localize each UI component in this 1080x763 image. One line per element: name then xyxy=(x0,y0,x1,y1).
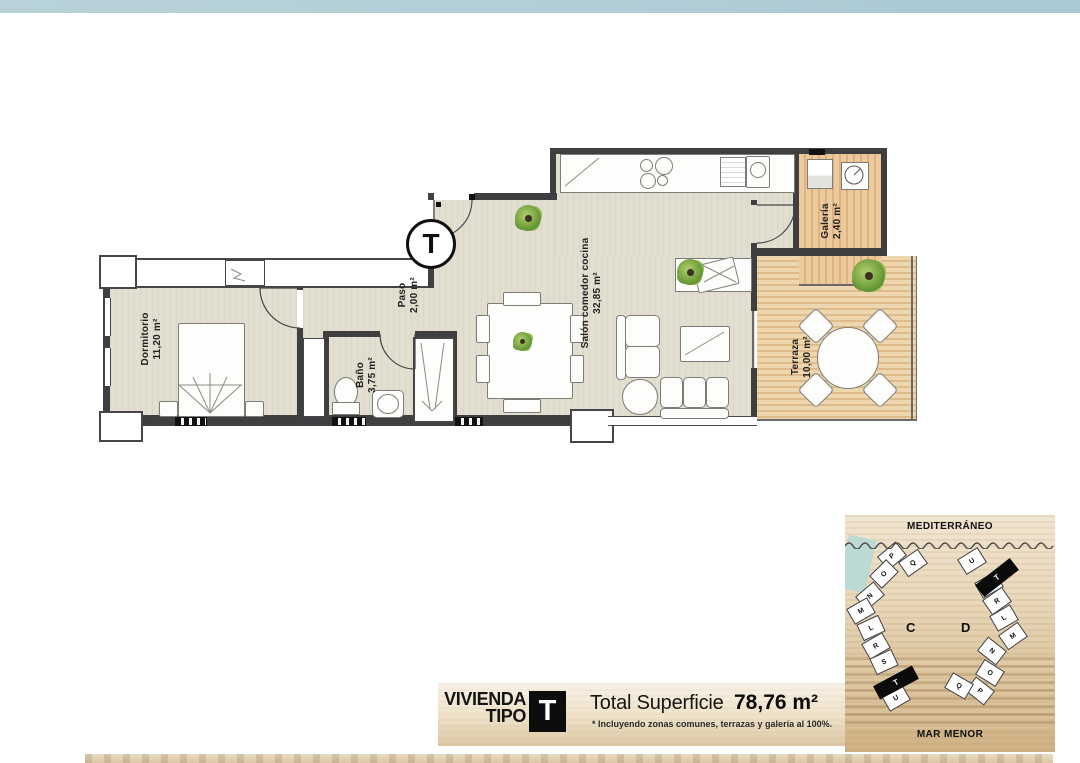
title-plate: VIVIENDA TIPO T Total Superficie 78,76 m… xyxy=(438,683,845,746)
floor-plan: T Dormitorio 11,20 m² Baño 3,75 m² Paso … xyxy=(95,143,940,445)
room-label-bano: Baño 3,75 m² xyxy=(355,357,379,393)
type-title-line2: TIPO xyxy=(486,706,526,726)
room-label-salon: Salón comedor cocina 32,85 m² xyxy=(580,238,604,349)
room-name: Salón comedor cocina xyxy=(580,238,591,349)
sea-label-north: MEDITERRÁNEO xyxy=(845,521,1055,532)
block-label-d: D xyxy=(961,620,970,635)
top-color-band xyxy=(0,0,1080,13)
total-surface-value: 78,76 m² xyxy=(734,691,818,715)
unit: U xyxy=(957,547,987,575)
footnote: * Incluyendo zonas comunes, terrazas y g… xyxy=(592,719,832,729)
plan-linework xyxy=(95,143,940,445)
room-label-galeria: Galería 2,40 m² xyxy=(820,203,844,239)
block-label-c: C xyxy=(906,620,915,635)
room-name: Paso xyxy=(397,283,408,308)
sea-label-south: MAR MENOR xyxy=(845,729,1055,740)
room-area: 32,85 m² xyxy=(592,272,603,314)
room-area: 10,00 m² xyxy=(802,336,813,378)
room-name: Terraza xyxy=(790,339,801,375)
type-title: VIVIENDA TIPO xyxy=(444,691,526,725)
room-name: Dormitorio xyxy=(140,312,151,365)
room-name: Baño xyxy=(355,362,366,388)
room-area: 11,20 m² xyxy=(152,318,163,359)
total-surface-label: Total Superficie xyxy=(590,692,724,715)
room-area: 3,75 m² xyxy=(367,357,378,393)
room-label-dormitorio: Dormitorio 11,20 m² xyxy=(140,312,164,365)
entry-type-badge: T xyxy=(406,219,456,269)
type-letter-badge: T xyxy=(529,691,566,732)
room-area: 2,00 m² xyxy=(409,277,420,313)
room-name: Galería xyxy=(820,203,831,238)
sand-strip xyxy=(85,754,1053,763)
site-map: MEDITERRÁNEO P Q O N M L R S T U C U T S… xyxy=(845,515,1055,752)
room-area: 2,40 m² xyxy=(832,203,843,239)
room-label-terraza: Terraza 10,00 m² xyxy=(790,336,814,378)
brochure-page: T Dormitorio 11,20 m² Baño 3,75 m² Paso … xyxy=(0,0,1080,763)
wave-line xyxy=(845,539,1055,549)
room-label-paso: Paso 2,00 m² xyxy=(397,277,421,313)
